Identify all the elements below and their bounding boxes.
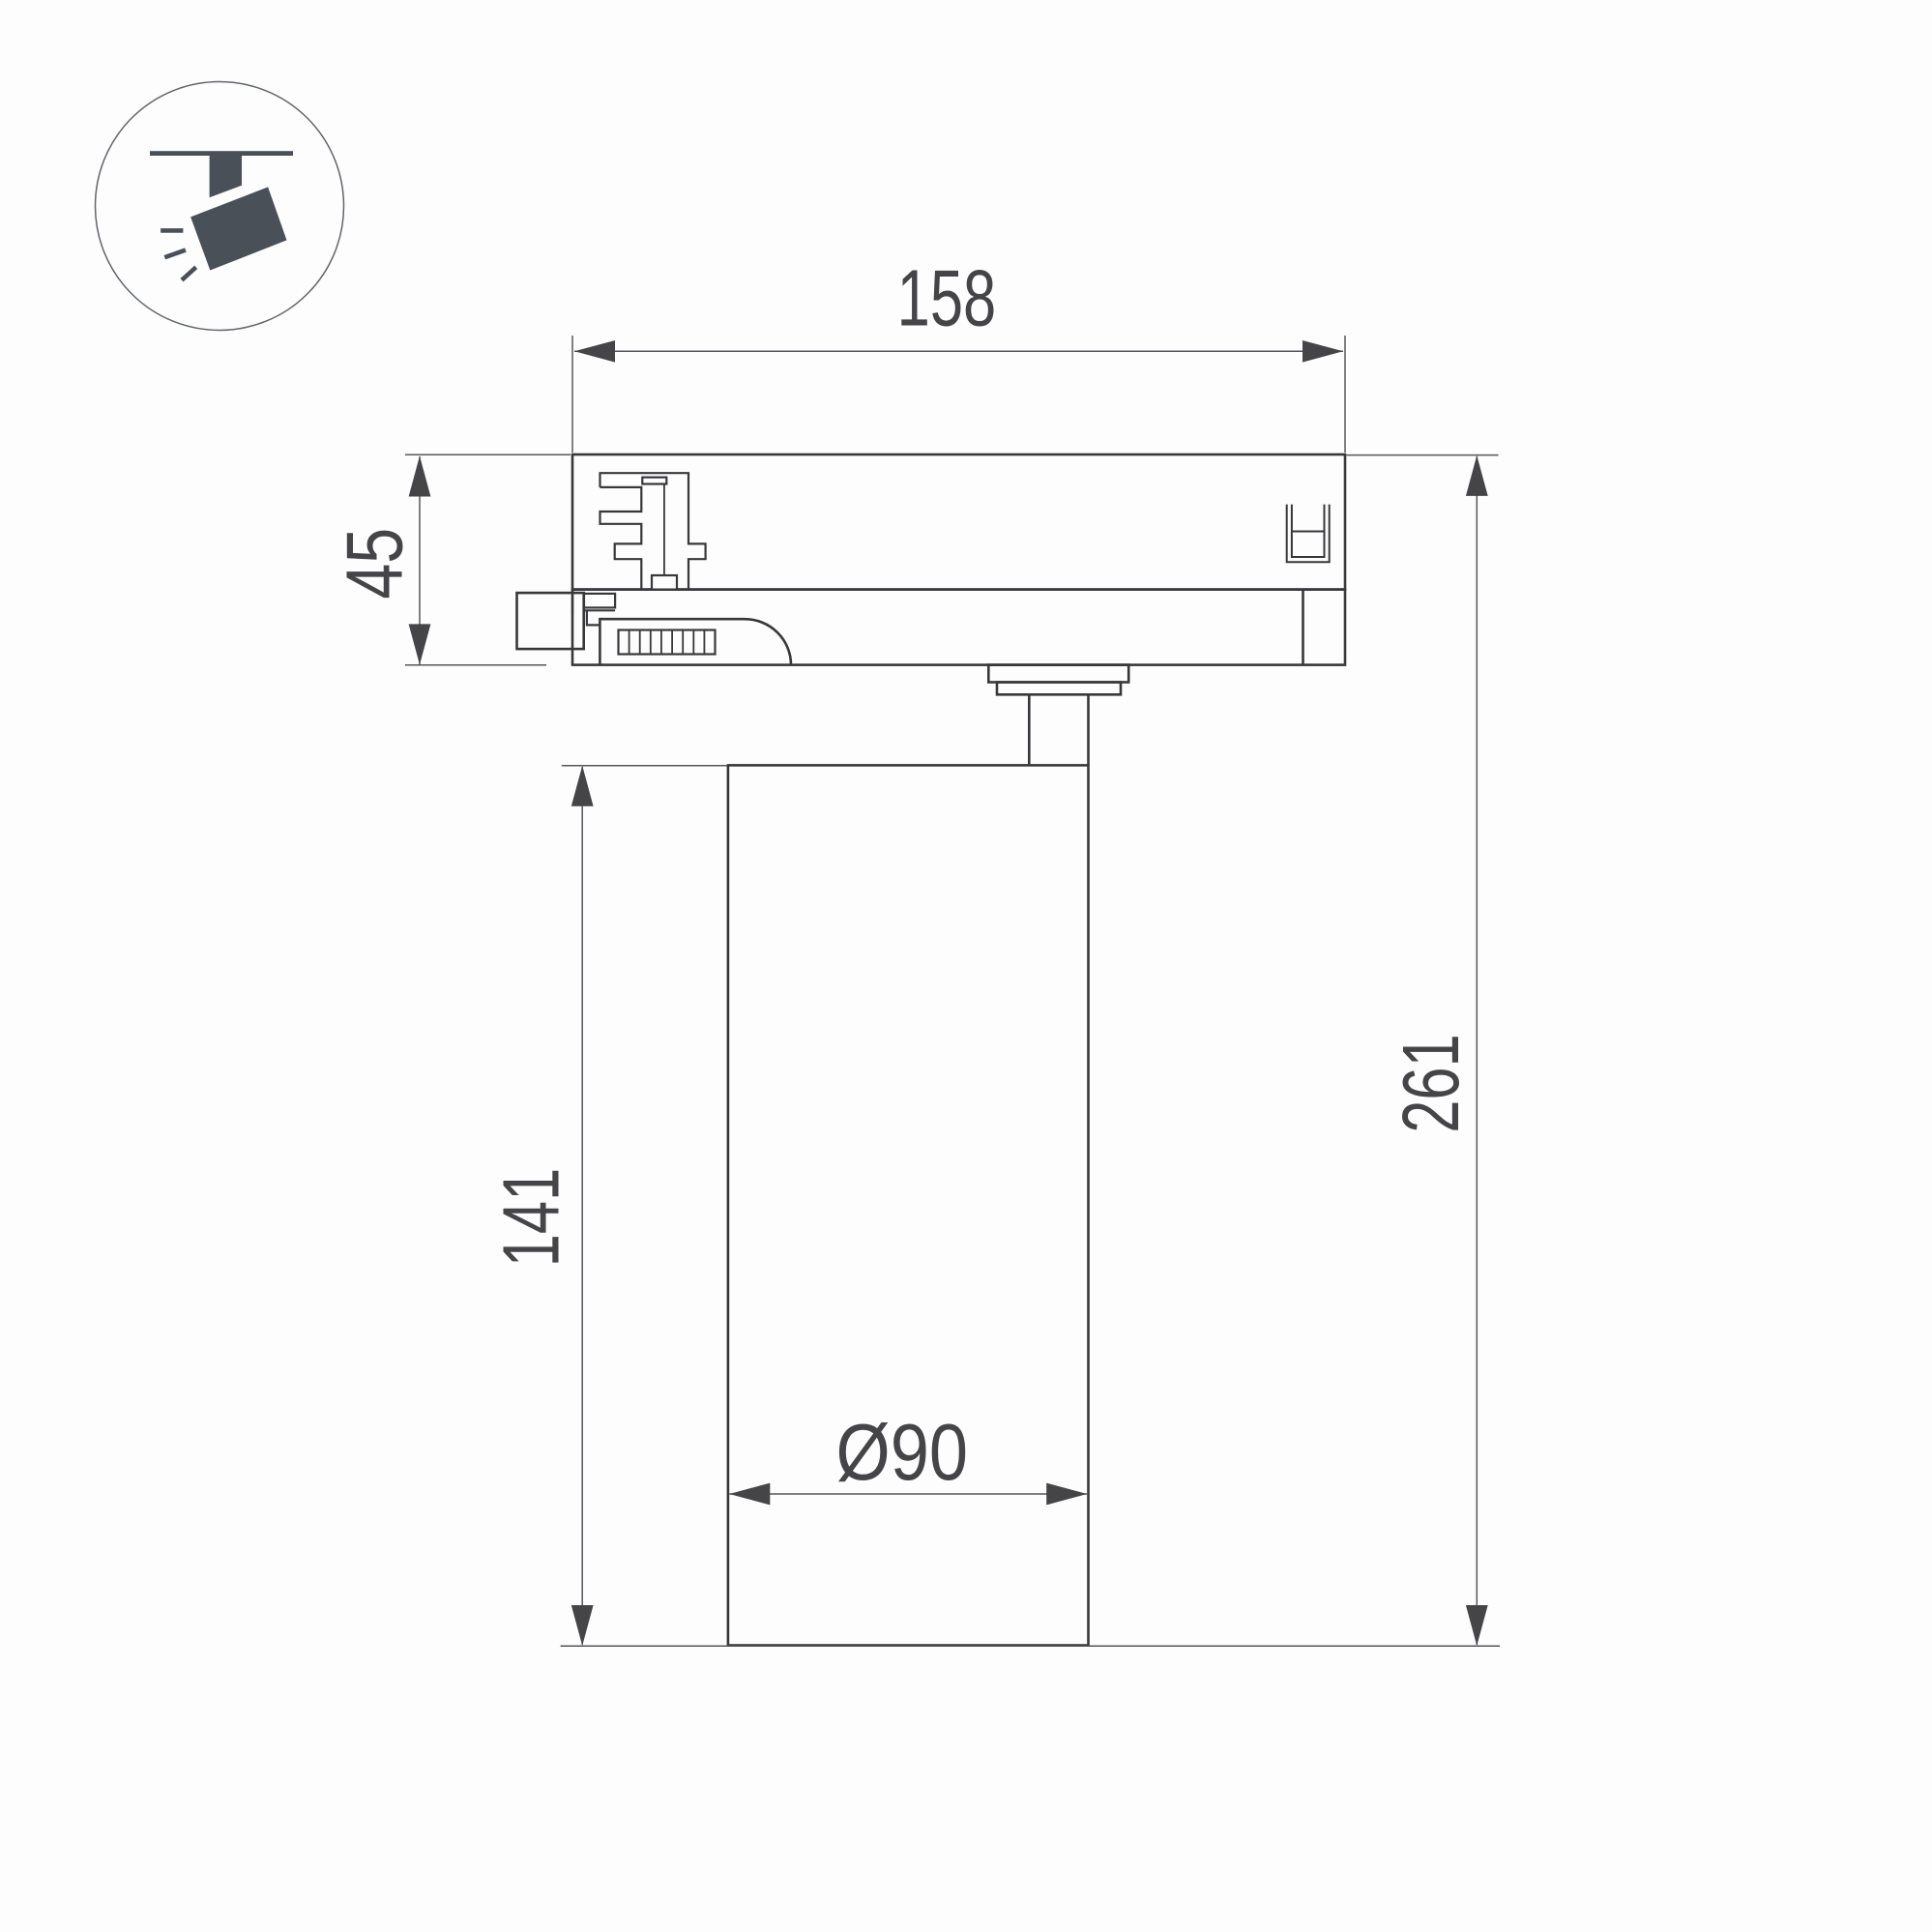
svg-text:Ø90: Ø90 [836, 1408, 968, 1497]
svg-text:141: 141 [487, 1168, 576, 1267]
svg-text:45: 45 [329, 528, 419, 600]
svg-text:158: 158 [897, 254, 996, 343]
svg-text:261: 261 [1387, 1034, 1476, 1132]
